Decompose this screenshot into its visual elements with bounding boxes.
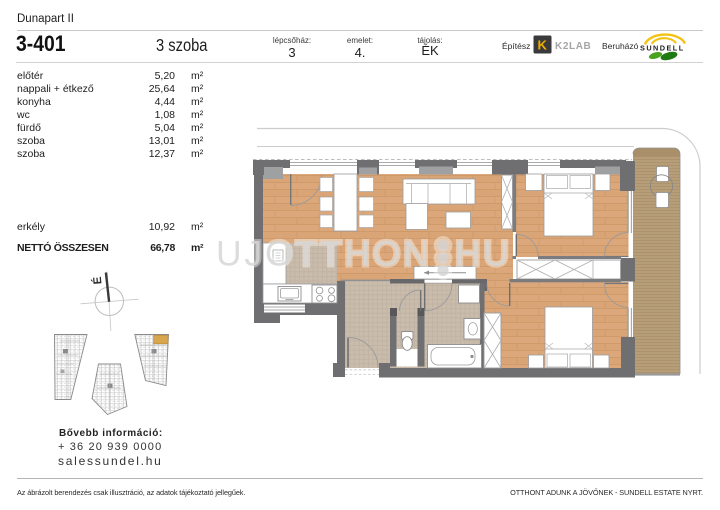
svg-text:K: K	[538, 38, 548, 53]
svg-text:K2LAB: K2LAB	[555, 41, 591, 52]
svg-text:É: É	[91, 276, 105, 285]
svg-text:SUNDELL: SUNDELL	[640, 44, 685, 53]
svg-text:HU: HU	[455, 234, 512, 274]
svg-text:UJOTTHON: UJOTTHON	[216, 234, 432, 274]
